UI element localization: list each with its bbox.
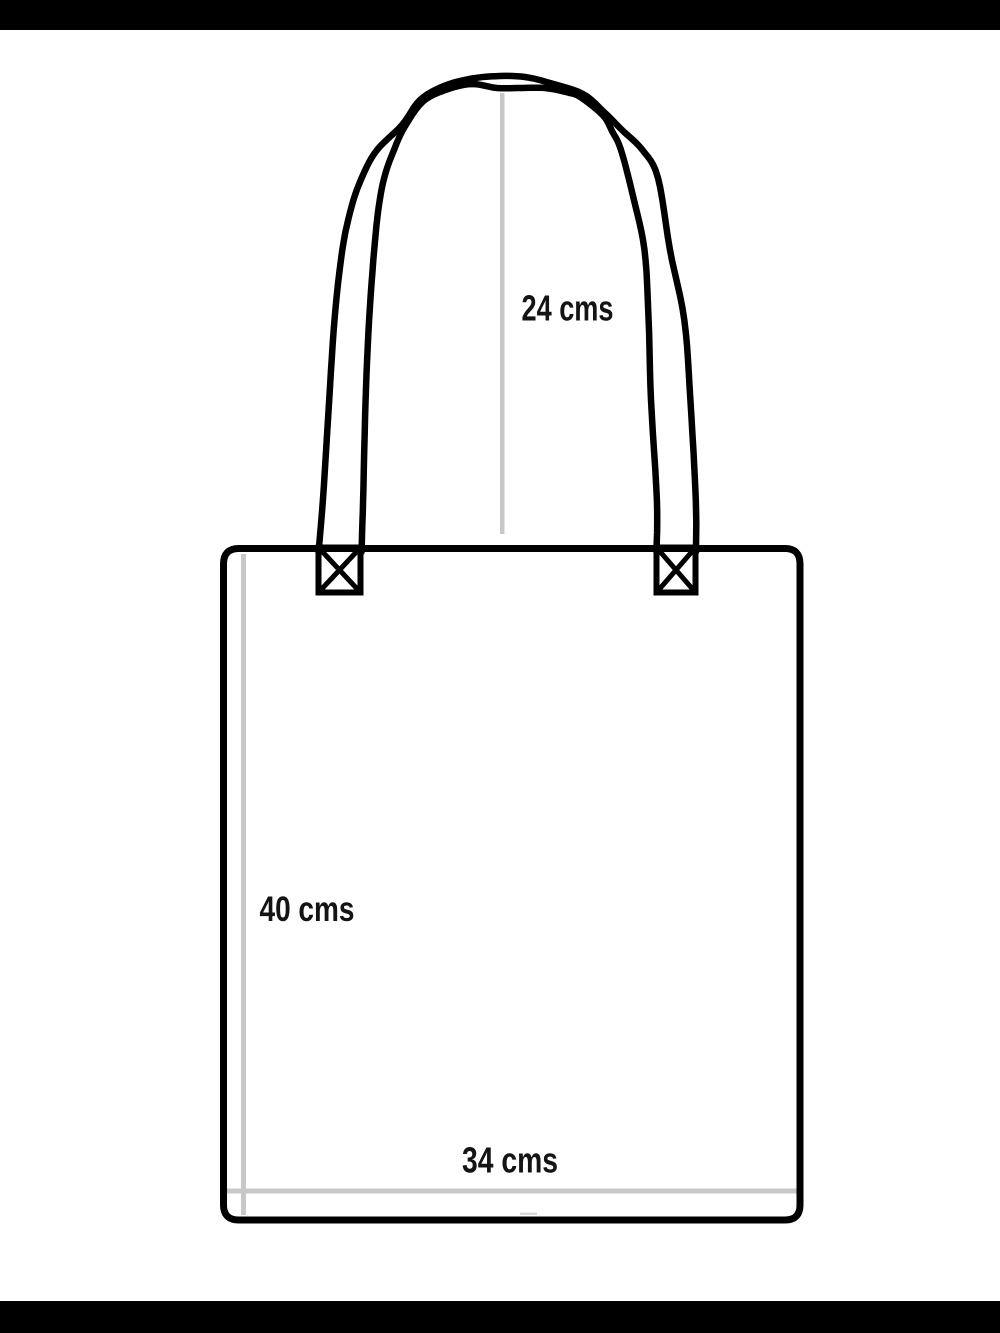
svg-text:34 cms: 34 cms: [462, 1140, 558, 1181]
svg-text:24 cms: 24 cms: [522, 288, 614, 329]
svg-text:40 cms: 40 cms: [260, 890, 355, 929]
